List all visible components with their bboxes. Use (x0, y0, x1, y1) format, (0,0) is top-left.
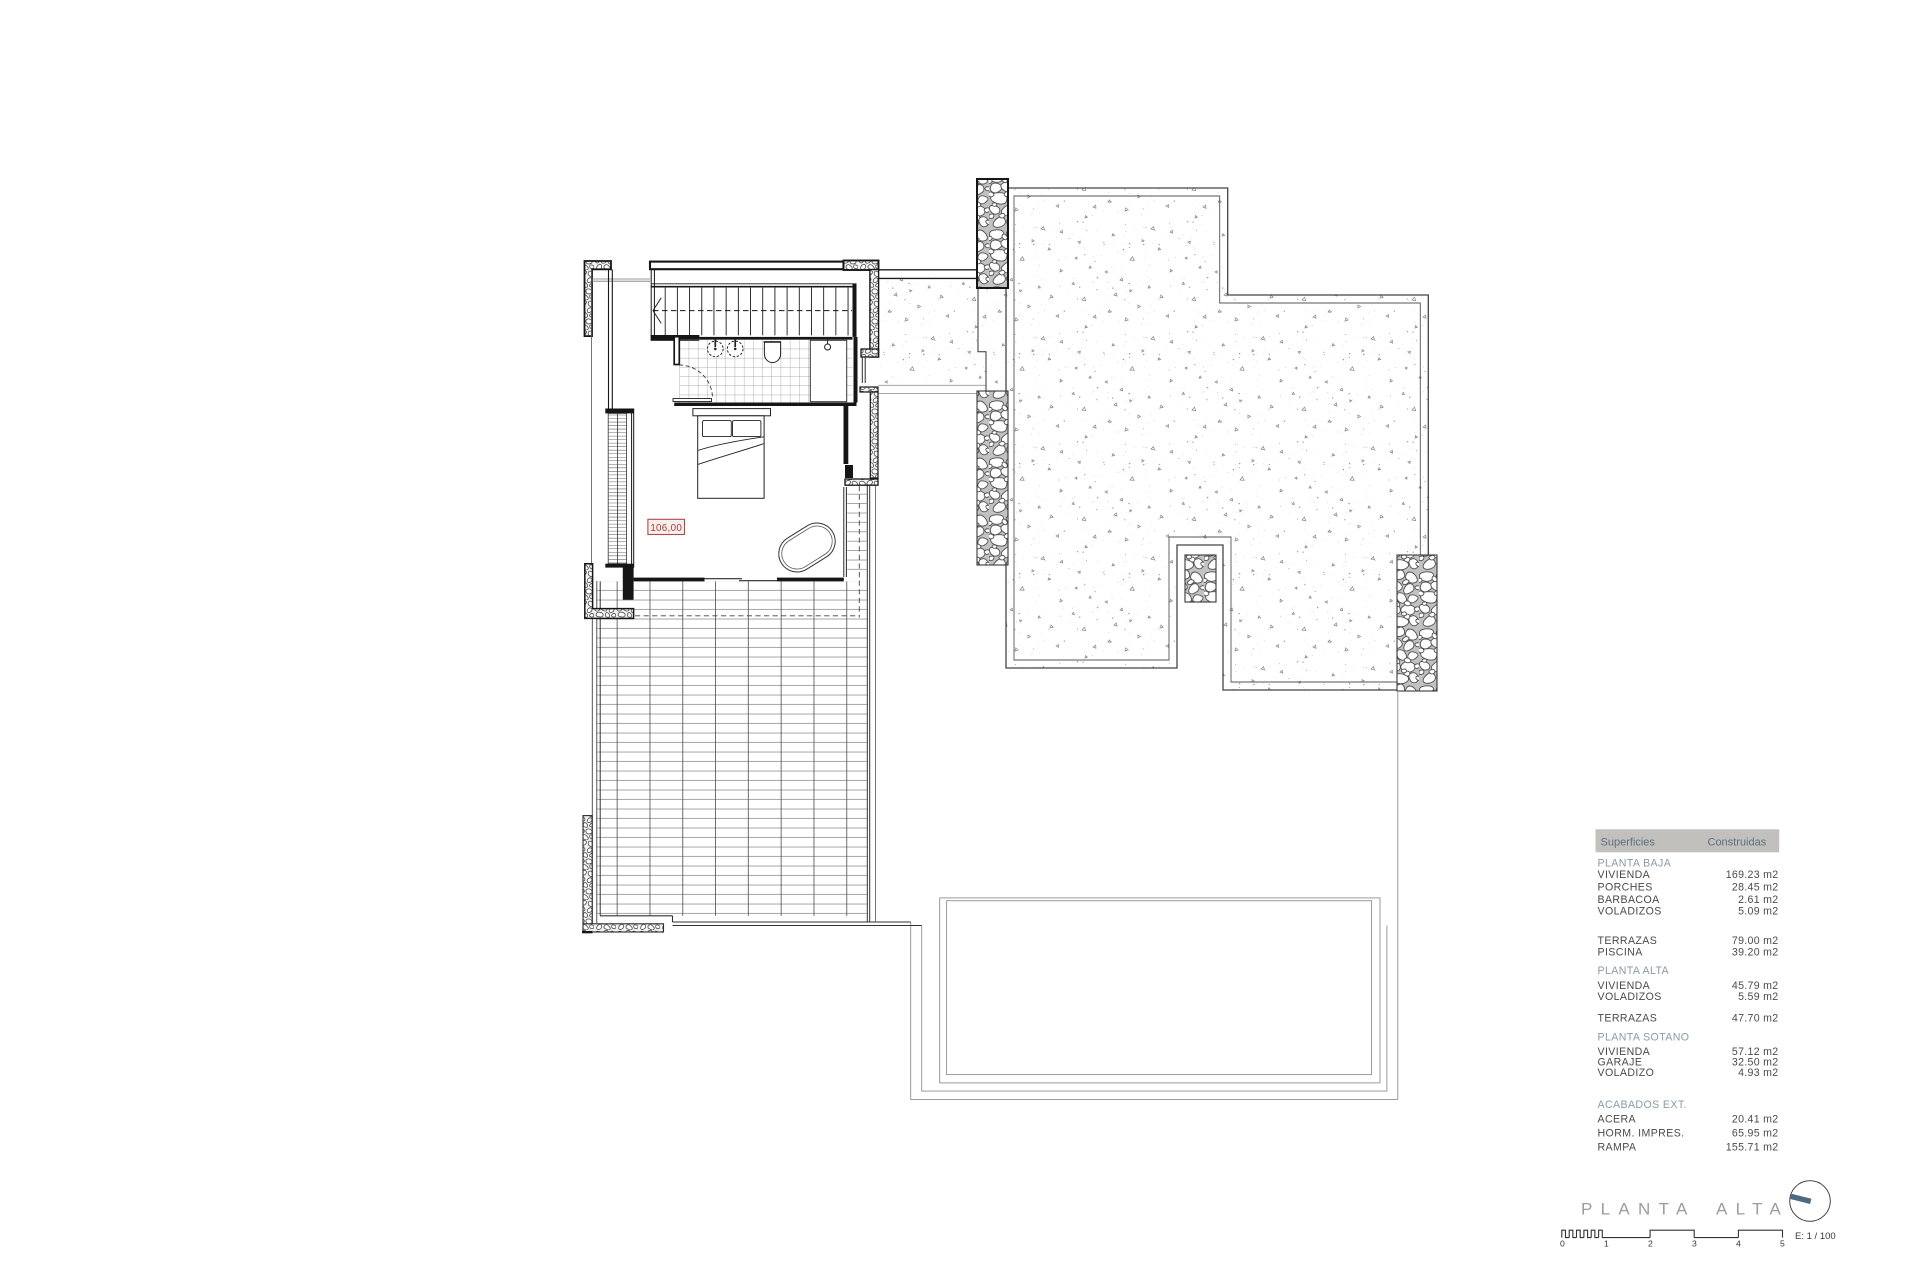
svg-text:0: 0 (1560, 1239, 1565, 1249)
svg-text:ACABADOS EXT.: ACABADOS EXT. (1598, 1099, 1687, 1111)
svg-text:5.59 m2: 5.59 m2 (1738, 991, 1778, 1003)
svg-text:20.41 m2: 20.41 m2 (1732, 1113, 1779, 1125)
svg-text:TERRAZAS: TERRAZAS (1598, 935, 1658, 947)
svg-text:VOLADIZOS: VOLADIZOS (1598, 905, 1662, 917)
svg-text:VIVIENDA: VIVIENDA (1598, 980, 1651, 992)
svg-text:TERRAZAS: TERRAZAS (1598, 1013, 1658, 1025)
svg-text:ACERA: ACERA (1598, 1113, 1637, 1125)
svg-text:79.00 m2: 79.00 m2 (1732, 935, 1779, 947)
svg-text:Construidas: Construidas (1708, 836, 1767, 848)
svg-text:5.09 m2: 5.09 m2 (1738, 905, 1778, 917)
svg-text:45.79 m2: 45.79 m2 (1732, 980, 1779, 992)
svg-text:47.70 m2: 47.70 m2 (1732, 1013, 1779, 1025)
svg-text:2.61 m2: 2.61 m2 (1738, 894, 1778, 906)
svg-text:1: 1 (1604, 1239, 1609, 1249)
svg-text:PISCINA: PISCINA (1598, 947, 1644, 959)
svg-text:PORCHES: PORCHES (1598, 882, 1653, 894)
svg-text:RAMPA: RAMPA (1598, 1141, 1637, 1153)
svg-text:PLANTA ALTA: PLANTA ALTA (1598, 965, 1670, 977)
svg-text:E: 1 / 100: E: 1 / 100 (1795, 1231, 1836, 1242)
svg-text:Superficies: Superficies (1601, 836, 1656, 848)
svg-text:2: 2 (1648, 1239, 1653, 1249)
svg-text:5: 5 (1780, 1239, 1785, 1249)
svg-text:PLANTA: PLANTA (1581, 1200, 1696, 1219)
svg-text:4: 4 (1736, 1239, 1741, 1249)
svg-text:PLANTA SOTANO: PLANTA SOTANO (1598, 1032, 1690, 1044)
svg-text:PLANTA BAJA: PLANTA BAJA (1598, 858, 1672, 870)
svg-text:ALTA: ALTA (1716, 1200, 1789, 1219)
svg-text:BARBACOA: BARBACOA (1598, 894, 1661, 906)
svg-text:4.93 m2: 4.93 m2 (1738, 1067, 1778, 1079)
svg-text:3: 3 (1692, 1239, 1697, 1249)
svg-text:169.23 m2: 169.23 m2 (1726, 869, 1779, 881)
svg-text:HORM. IMPRES.: HORM. IMPRES. (1598, 1128, 1685, 1140)
svg-text:VOLADIZO: VOLADIZO (1598, 1067, 1655, 1079)
svg-text:106,00: 106,00 (650, 523, 682, 534)
svg-text:39.20 m2: 39.20 m2 (1732, 947, 1779, 959)
svg-text:VIVIENDA: VIVIENDA (1598, 869, 1651, 881)
svg-text:155.71 m2: 155.71 m2 (1726, 1141, 1779, 1153)
svg-text:28.45 m2: 28.45 m2 (1732, 882, 1779, 894)
svg-text:65.95 m2: 65.95 m2 (1732, 1128, 1779, 1140)
svg-text:VOLADIZOS: VOLADIZOS (1598, 991, 1662, 1003)
